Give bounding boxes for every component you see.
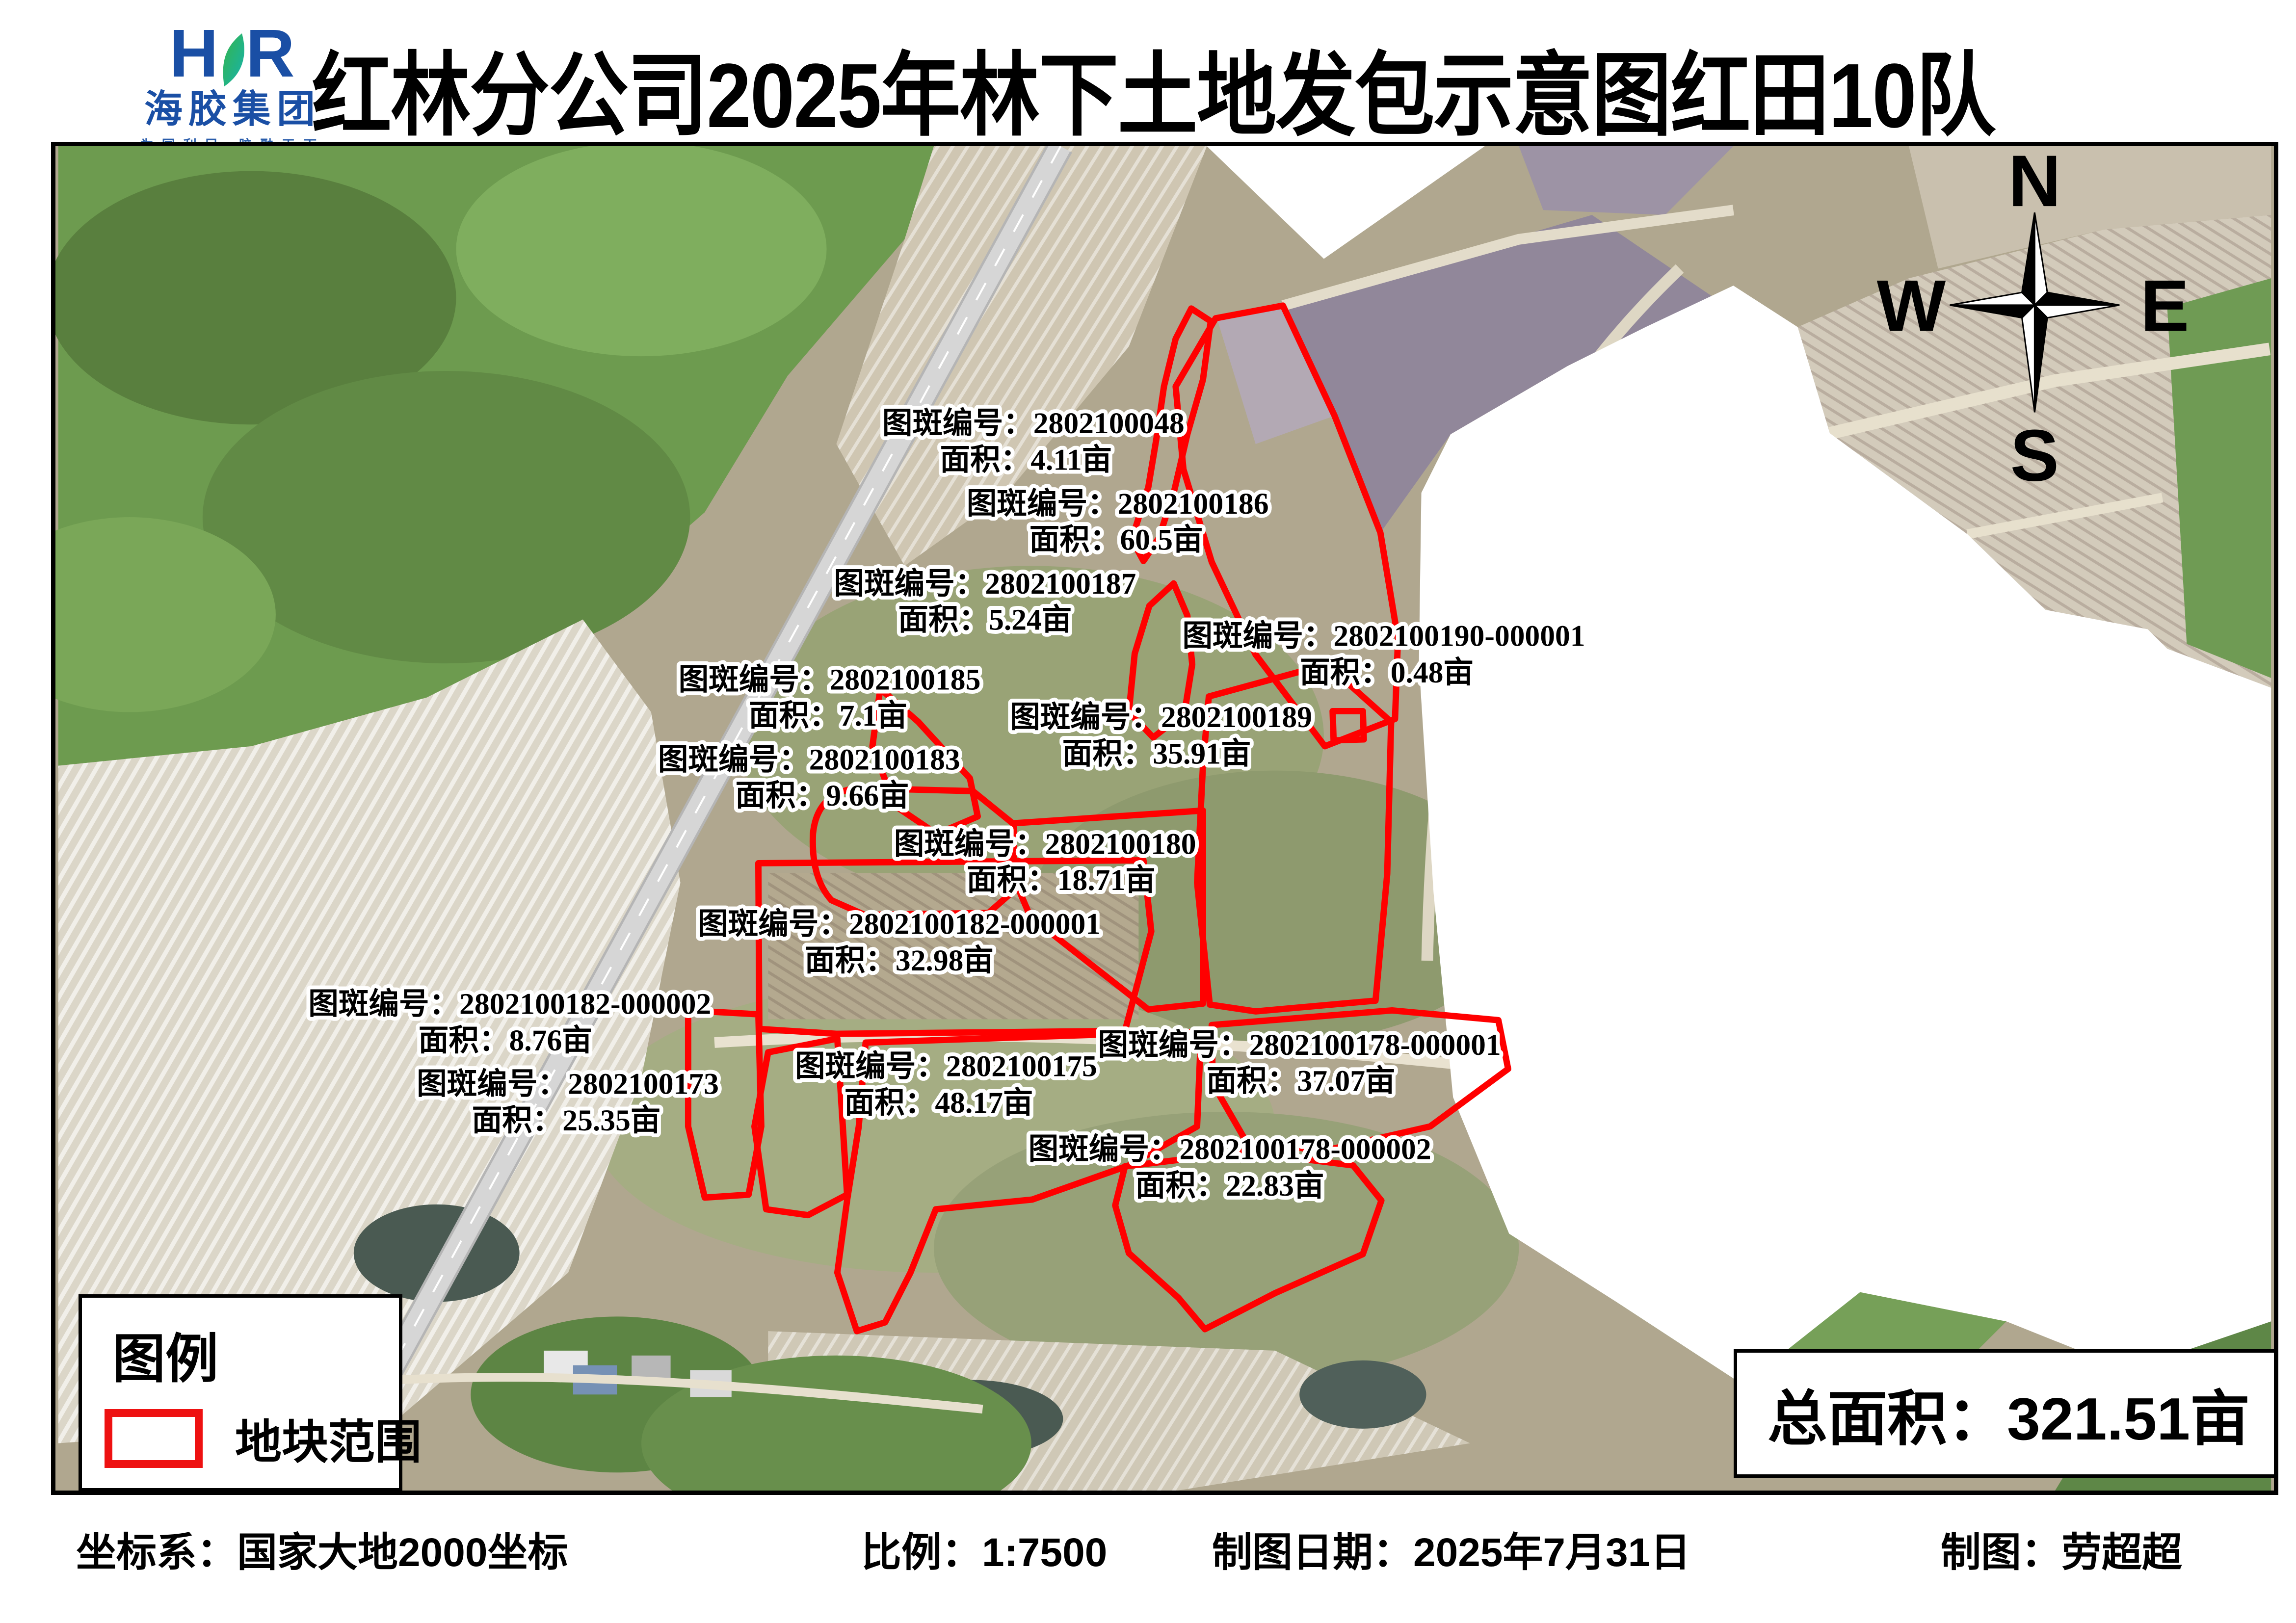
legend-item: 地块范围 bbox=[105, 1405, 422, 1472]
parcel-label-2802100175-line1: 图斑编号：2802100175 bbox=[795, 1050, 1097, 1083]
parcel-label-2802100173-line1: 图斑编号：2802100173 bbox=[417, 1067, 719, 1100]
parcel-label-2802100178-000002-line1: 图斑编号：2802100178-000002 bbox=[1029, 1132, 1431, 1166]
parcel-label-2802100189-line2: 面积：35.91亩 bbox=[1062, 737, 1251, 771]
parcel-label-2802100189-line1: 图斑编号：2802100189 bbox=[1010, 701, 1312, 734]
parcel-label-2802100186-line2: 面积：60.5亩 bbox=[1029, 524, 1203, 557]
parcel-label-2802100190-000001-line1: 图斑编号：2802100190-000001 bbox=[1183, 619, 1585, 653]
compass-letter-s: S bbox=[2010, 415, 2059, 497]
parcel-label-2802100185-line2: 面积：7.1亩 bbox=[749, 699, 907, 733]
footer-date: 制图日期：2025年7月31日 bbox=[1212, 1519, 1690, 1578]
parcel-label-2802100048-line1: 图斑编号：2802100048 bbox=[882, 407, 1185, 440]
leaf-icon bbox=[217, 32, 249, 87]
page-title: 红林分公司2025年林下土地发包示意图红田10队 bbox=[275, 31, 2032, 143]
legend-symbol-parcel-outline bbox=[105, 1409, 203, 1468]
parcel-label-2802100182-000002-line1: 图斑编号：2802100182-000002 bbox=[308, 987, 711, 1021]
legend-box: 图例 地块范围 bbox=[79, 1294, 402, 1492]
parcel-label-2802100182-000001-line2: 面积：32.98亩 bbox=[805, 944, 994, 977]
compass-letter-n: N bbox=[2008, 146, 2061, 222]
parcel-label-2802100183-line1: 图斑编号：2802100183 bbox=[658, 743, 960, 777]
parcel-label-2802100173-line2: 面积：25.35亩 bbox=[472, 1104, 661, 1137]
parcel-label-2802100187-line2: 面积：5.24亩 bbox=[898, 603, 1072, 637]
map-canvas: 图斑编号：2802100048面积：4.11亩图斑编号：2802100186面积… bbox=[55, 146, 2274, 1491]
logo-letter-h: H bbox=[169, 20, 219, 87]
parcel-label-2802100182-000002-line2: 面积：8.76亩 bbox=[419, 1024, 592, 1057]
footer-cartographer: 制图：劳超超 bbox=[1941, 1519, 2182, 1578]
map-frame: 图斑编号：2802100048面积：4.11亩图斑编号：2802100186面积… bbox=[51, 142, 2278, 1495]
parcel-label-2802100183-line2: 面积：9.66亩 bbox=[736, 779, 909, 812]
parcel-label-2802100185-line1: 图斑编号：2802100185 bbox=[679, 663, 981, 697]
footer: 坐标系：国家大地2000坐标 比例：1:7500 制图日期：2025年7月31日… bbox=[0, 1495, 2296, 1623]
parcel-label-2802100182-000001-line1: 图斑编号：2802100182-000001 bbox=[698, 907, 1101, 941]
legend-item-label: 地块范围 bbox=[235, 1405, 422, 1472]
footer-crs: 坐标系：国家大地2000坐标 bbox=[76, 1519, 568, 1578]
parcel-label-2802100186-line1: 图斑编号：2802100186 bbox=[967, 487, 1269, 521]
parcel-label-2802100180-line1: 图斑编号：2802100180 bbox=[894, 828, 1196, 861]
parcel-label-2802100180-line2: 面积：18.71亩 bbox=[967, 864, 1156, 897]
parcel-label-2802100178-000001-line2: 面积：37.07亩 bbox=[1207, 1064, 1396, 1098]
compass-letter-e: E bbox=[2140, 265, 2189, 347]
parcel-label-2802100190-000001-line2: 面积：0.48亩 bbox=[1300, 656, 1474, 689]
compass-letter-w: W bbox=[1877, 265, 1946, 347]
total-area-text: 总面积：321.51亩 bbox=[1768, 1370, 2250, 1457]
legend-title: 图例 bbox=[112, 1316, 218, 1393]
footer-scale: 比例：1:7500 bbox=[861, 1519, 1107, 1578]
total-area-box: 总面积：321.51亩 bbox=[1734, 1349, 2277, 1478]
header: H R 海胶集团 为国利民 胶融天下 红林分公司2025年林下土地发包示意图红田… bbox=[0, 0, 2296, 142]
parcel-label-2802100187-line1: 图斑编号：2802100187 bbox=[834, 567, 1136, 601]
page: H R 海胶集团 为国利民 胶融天下 红林分公司2025年林下土地发包示意图红田… bbox=[0, 0, 2296, 1623]
parcel-label-2802100048-line2: 面积：4.11亩 bbox=[940, 444, 1112, 477]
parcel-label-2802100178-000001-line1: 图斑编号：2802100178-000001 bbox=[1098, 1028, 1501, 1062]
parcel-label-2802100178-000002-line2: 面积：22.83亩 bbox=[1135, 1169, 1324, 1203]
parcel-label-2802100175-line2: 面积：48.17亩 bbox=[845, 1086, 1033, 1120]
